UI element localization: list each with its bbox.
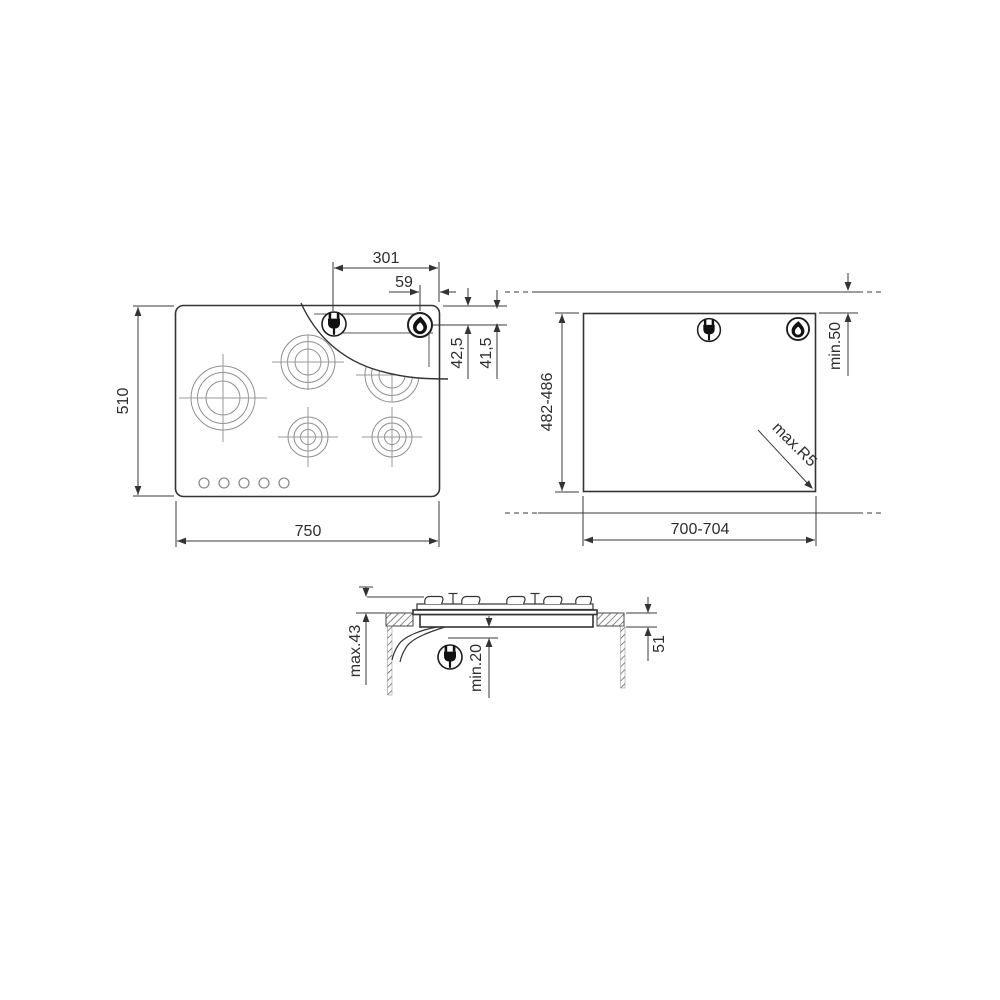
section-view: max.43 min.20 51	[347, 587, 668, 698]
dim-width-750: 750	[176, 501, 439, 547]
dim-gas-41-5: 41,5	[478, 290, 500, 379]
knob	[259, 478, 269, 488]
burner-bottom-center	[278, 407, 338, 467]
dim-label: 59	[395, 274, 413, 291]
dim-label: 750	[295, 523, 322, 540]
dim-recess-depth: 51	[626, 597, 668, 661]
worktop-section	[386, 613, 413, 626]
cutout-outline	[584, 314, 816, 492]
dim-cutout-depth: 482-486	[539, 313, 579, 492]
dim-label: min.50	[827, 322, 844, 370]
dim-label: min.20	[468, 644, 485, 692]
dim-label: 510	[115, 388, 132, 415]
dim-depth-510: 510	[115, 306, 174, 496]
flame-icon	[787, 318, 809, 340]
hob-glass-section	[413, 610, 597, 615]
burner-top-right-partial	[356, 348, 428, 402]
dim-rear-clearance: min.50	[819, 273, 858, 376]
dim-plug-301: 301	[333, 250, 439, 311]
cabinet-panel	[621, 626, 626, 688]
control-knobs	[199, 478, 289, 488]
dim-label: 42,5	[449, 337, 466, 368]
dim-label: max.43	[347, 625, 364, 678]
flame-icon	[408, 313, 432, 337]
pan-supports-section	[417, 594, 593, 610]
dim-label: max.R5	[769, 419, 820, 470]
dim-label: 301	[373, 250, 400, 267]
knob	[279, 478, 289, 488]
cutout-view: 482-486 700-704 min.50 max.R5	[505, 273, 882, 546]
worktop-section	[597, 613, 624, 626]
dim-cutout-width: 700-704	[583, 496, 816, 546]
burner-bottom-right	[362, 407, 422, 467]
installation-diagram: 510 750 301 59 42,5	[0, 0, 1000, 1000]
knob	[199, 478, 209, 488]
plug-icon	[438, 645, 462, 669]
knob	[219, 478, 229, 488]
plug-icon	[698, 319, 721, 342]
dim-corner-radius: max.R5	[758, 419, 820, 491]
plug-icon	[322, 312, 346, 336]
plan-view: 510 750 301 59 42,5	[115, 250, 507, 547]
dim-label: 482-486	[539, 373, 556, 432]
burner-left-large	[179, 354, 267, 442]
installation-diagram-page: 510 750 301 59 42,5	[0, 0, 1000, 1000]
knob	[239, 478, 249, 488]
burner-top-center	[272, 335, 344, 390]
cabinet-panel	[388, 626, 393, 695]
dim-label: 700-704	[671, 521, 730, 538]
dim-label: 51	[651, 635, 668, 653]
dim-height-above-worktop: max.43	[347, 587, 424, 685]
dim-label: 41,5	[478, 337, 495, 368]
hob-tray-section	[420, 615, 593, 628]
